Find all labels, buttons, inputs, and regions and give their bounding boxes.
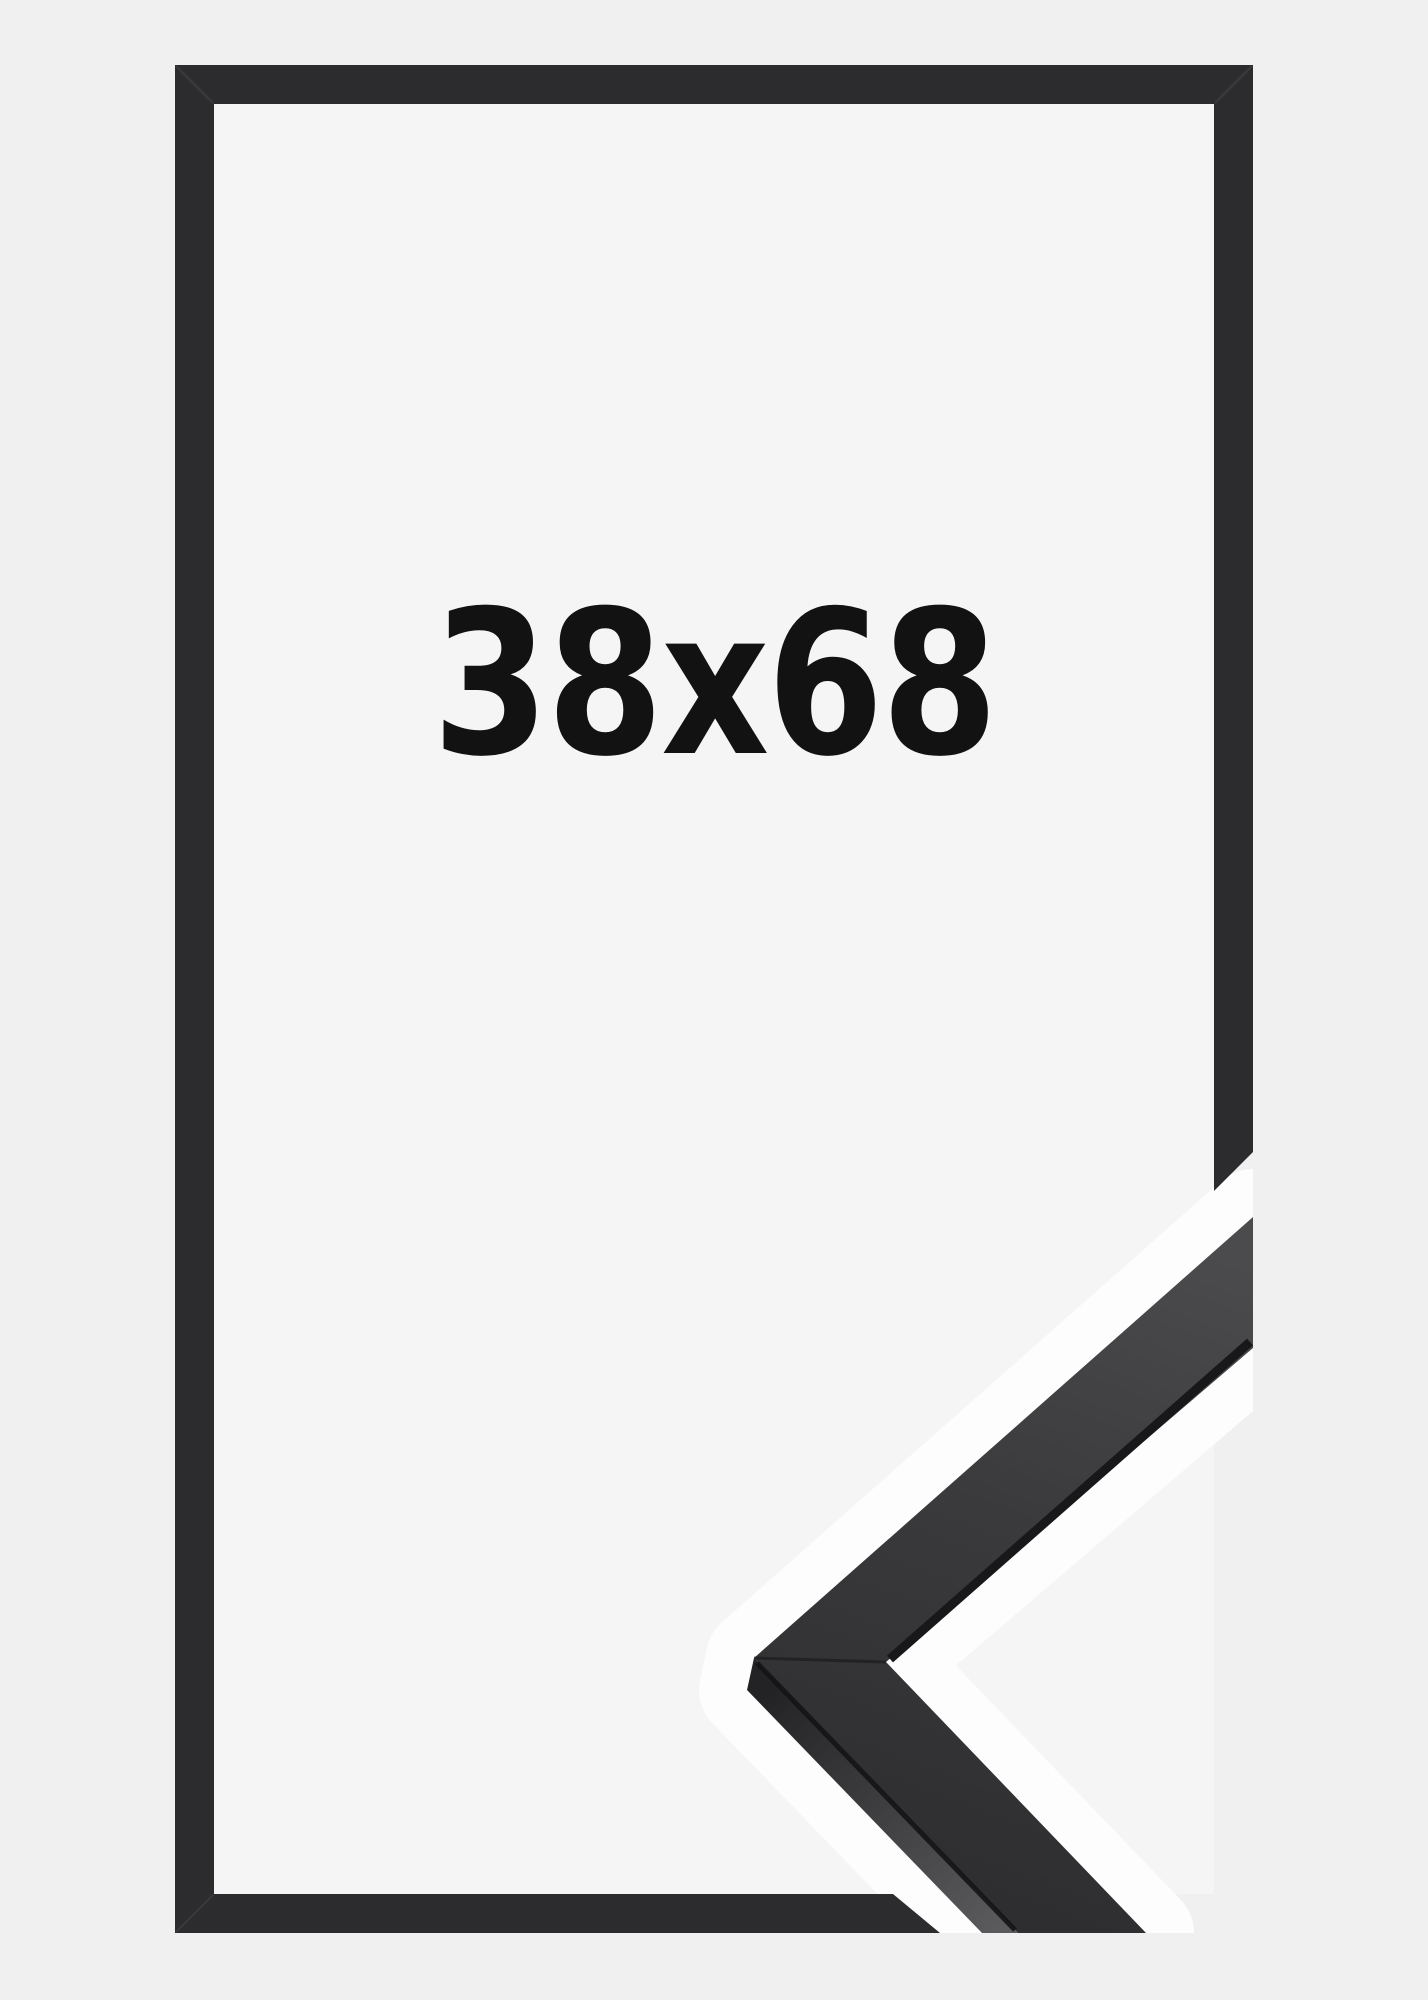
frame-bar-top	[175, 65, 1253, 104]
size-label: 38x68	[261, 585, 1167, 785]
frame-inner-area	[214, 104, 1214, 1894]
product-image: 38x68	[0, 0, 1428, 2000]
frame-bar-bottom	[175, 1894, 940, 1933]
frame-bar-right	[1214, 65, 1253, 1191]
frame-illustration	[0, 0, 1428, 2000]
frame-bar-left	[175, 65, 214, 1933]
